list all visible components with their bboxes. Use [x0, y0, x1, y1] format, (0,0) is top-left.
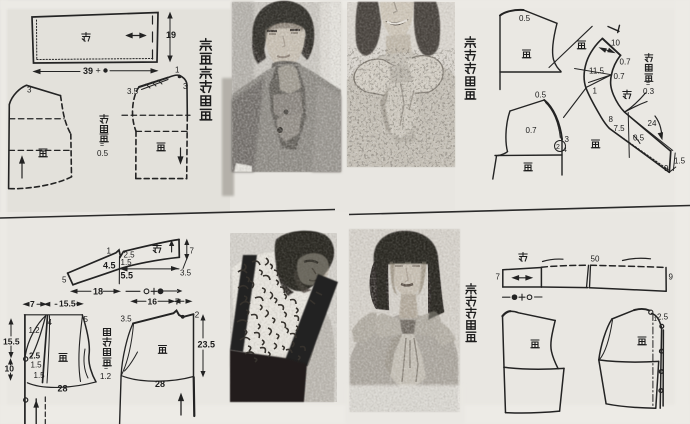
svg-text:9: 9 [664, 164, 669, 173]
svg-text:10: 10 [5, 364, 15, 374]
svg-text:3: 3 [565, 135, 570, 144]
svg-text:28: 28 [58, 384, 68, 394]
svg-text:7: 7 [496, 273, 501, 282]
svg-text:0.3: 0.3 [643, 87, 655, 96]
svg-text:1.2: 1.2 [29, 326, 41, 335]
svg-text:7: 7 [175, 296, 180, 306]
svg-text:1: 1 [593, 87, 598, 96]
svg-text:3.5: 3.5 [180, 269, 192, 278]
svg-text:10: 10 [611, 39, 620, 48]
svg-text:1: 1 [175, 66, 180, 75]
svg-text:2: 2 [195, 311, 200, 320]
svg-text:1: 1 [654, 316, 658, 323]
svg-text:0.5: 0.5 [97, 149, 109, 158]
svg-text:19: 19 [166, 30, 176, 40]
svg-text:5: 5 [62, 276, 67, 285]
svg-text:0.7: 0.7 [614, 72, 626, 81]
svg-text:1.5: 1.5 [121, 258, 133, 267]
svg-text:7.5: 7.5 [614, 124, 626, 133]
svg-text:0.7: 0.7 [526, 126, 538, 135]
svg-text:3: 3 [183, 82, 188, 91]
svg-text:1.5: 1.5 [674, 157, 686, 166]
svg-text:7: 7 [190, 247, 195, 256]
svg-text:0.7: 0.7 [620, 58, 632, 67]
svg-text:1.5: 1.5 [31, 361, 43, 370]
svg-text:11.5: 11.5 [589, 67, 605, 76]
svg-text:=: = [100, 142, 104, 149]
svg-text:3.5: 3.5 [127, 87, 139, 96]
svg-text:4: 4 [48, 318, 53, 327]
svg-text:3: 3 [27, 86, 32, 95]
svg-text:16: 16 [148, 296, 158, 306]
svg-text:9: 9 [669, 273, 674, 282]
svg-text:15.5: 15.5 [3, 337, 20, 347]
svg-text:8: 8 [609, 115, 614, 124]
svg-text:5.5: 5.5 [121, 271, 134, 281]
svg-text:39: 39 [83, 66, 93, 76]
svg-text:+: + [96, 66, 101, 76]
svg-text:1.2: 1.2 [100, 372, 112, 381]
svg-text:24: 24 [648, 119, 657, 128]
svg-text:2.5: 2.5 [29, 352, 41, 361]
svg-text:4.5: 4.5 [103, 261, 116, 271]
svg-text:15.5: 15.5 [59, 299, 76, 309]
svg-text:50: 50 [591, 255, 600, 264]
svg-text:1.5: 1.5 [34, 371, 46, 380]
svg-text:5: 5 [84, 315, 89, 324]
svg-text:18: 18 [93, 287, 103, 297]
svg-text:23.5: 23.5 [198, 340, 216, 350]
svg-text:1: 1 [107, 247, 112, 256]
svg-text:0.5: 0.5 [519, 14, 531, 23]
svg-text:0.5: 0.5 [633, 134, 645, 143]
svg-text:2.5: 2.5 [657, 313, 669, 322]
svg-text:0.5: 0.5 [535, 91, 547, 100]
svg-text:7: 7 [30, 299, 35, 309]
svg-text:=: = [104, 365, 108, 372]
svg-text:3.5: 3.5 [121, 315, 133, 324]
svg-text:28: 28 [155, 379, 165, 389]
